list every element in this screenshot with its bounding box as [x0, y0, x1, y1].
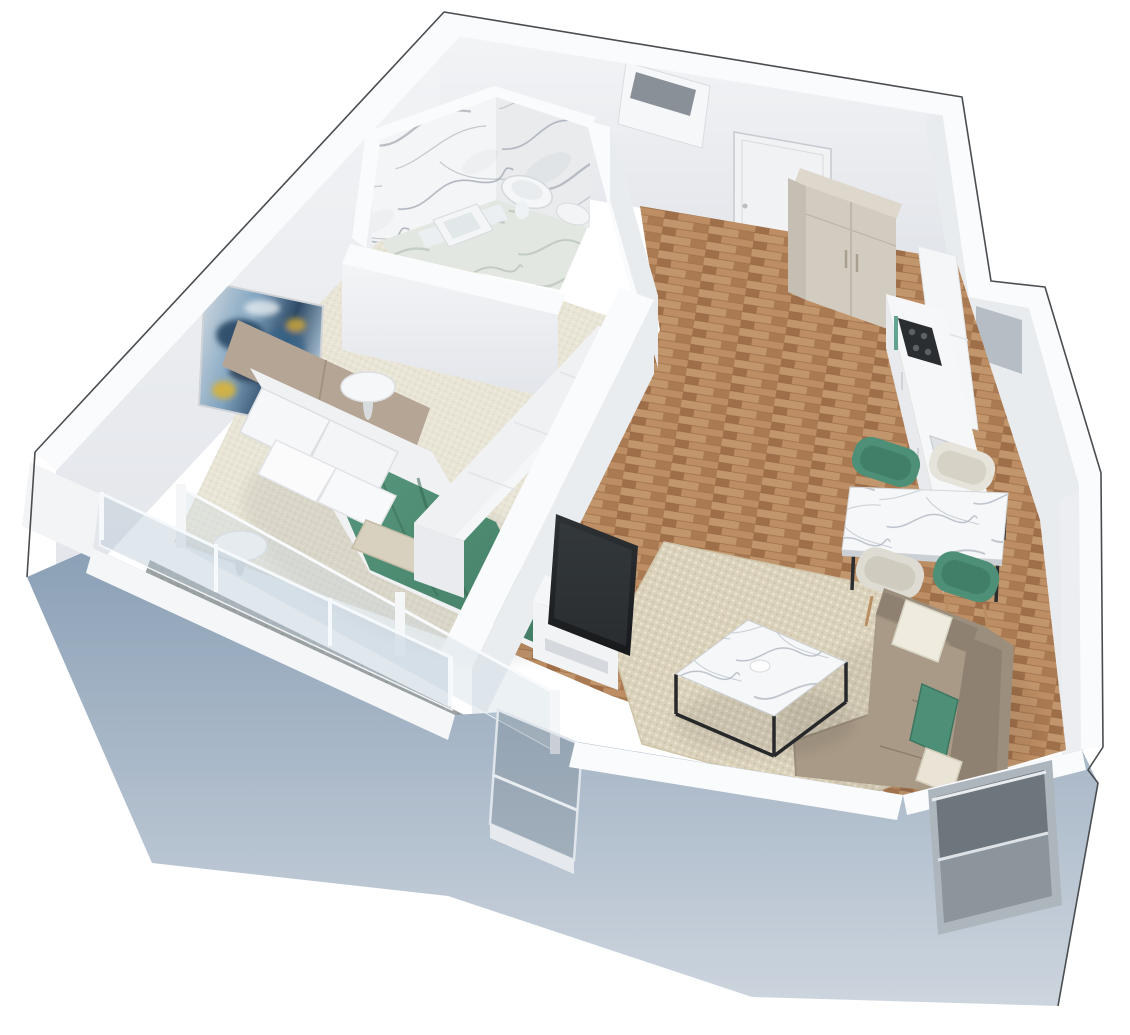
- dining-table-top: [842, 487, 1008, 560]
- corner-window: [928, 760, 1062, 935]
- floor-plan-render: [0, 0, 1130, 1035]
- cup-on-table: [750, 660, 770, 672]
- door-handle: [743, 204, 748, 209]
- apartment-3d-svg: [0, 0, 1130, 1035]
- wardrobe-side: [788, 178, 806, 300]
